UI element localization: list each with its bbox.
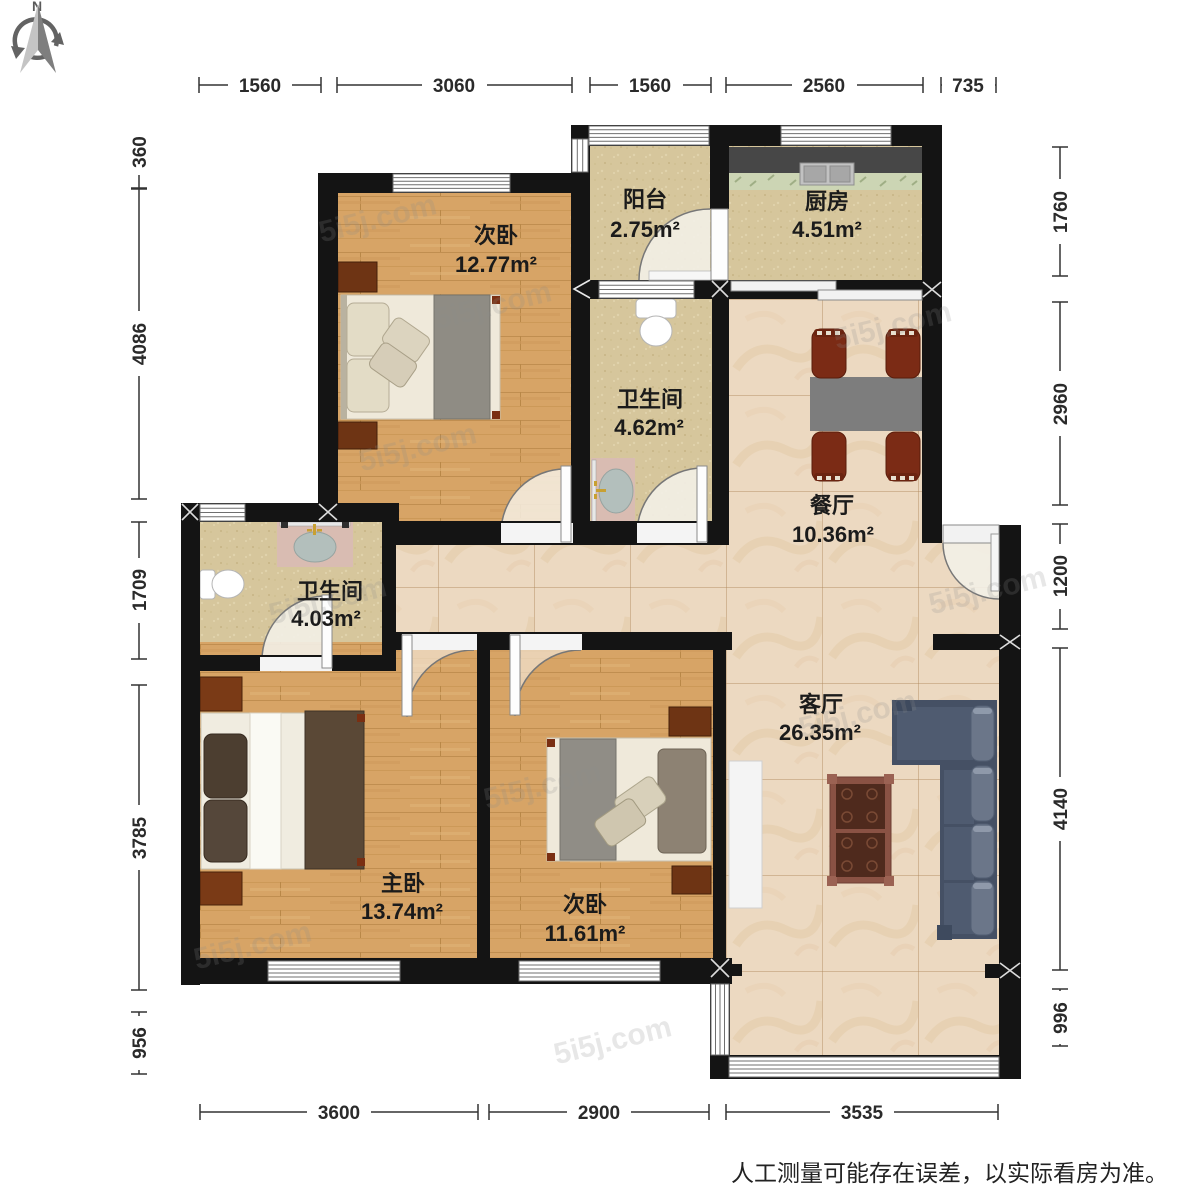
svg-text:主卧: 主卧	[381, 871, 425, 896]
svg-text:1760: 1760	[1051, 191, 1072, 233]
svg-text:4086: 4086	[130, 323, 151, 365]
svg-text:956: 956	[130, 1027, 151, 1059]
svg-text:卫生间: 卫生间	[617, 387, 683, 412]
svg-text:735: 735	[952, 76, 984, 97]
svg-text:13.74m²: 13.74m²	[361, 899, 443, 924]
svg-text:次卧: 次卧	[474, 223, 518, 248]
svg-text:人工测量可能存在误差，以实际看房为准。: 人工测量可能存在误差，以实际看房为准。	[731, 1160, 1168, 1186]
svg-text:996: 996	[1051, 1002, 1072, 1034]
svg-text:3600: 3600	[318, 1103, 360, 1124]
svg-text:1200: 1200	[1051, 555, 1072, 597]
svg-text:1709: 1709	[130, 569, 151, 611]
svg-text:次卧: 次卧	[563, 892, 607, 917]
svg-text:2560: 2560	[803, 76, 845, 97]
svg-text:2960: 2960	[1051, 383, 1072, 425]
svg-text:12.77m²: 12.77m²	[455, 252, 537, 277]
svg-text:1560: 1560	[629, 76, 671, 97]
svg-text:3785: 3785	[130, 816, 151, 859]
svg-text:11.61m²: 11.61m²	[545, 921, 626, 946]
svg-text:3535: 3535	[841, 1103, 884, 1124]
svg-text:餐厅: 餐厅	[810, 493, 854, 518]
svg-text:厨房: 厨房	[805, 189, 849, 214]
svg-text:4140: 4140	[1051, 788, 1072, 830]
svg-text:4.62m²: 4.62m²	[614, 415, 684, 440]
svg-text:10.36m²: 10.36m²	[792, 522, 874, 547]
svg-text:4.51m²: 4.51m²	[792, 217, 862, 242]
svg-text:2900: 2900	[578, 1103, 620, 1124]
svg-text:2.75m²: 2.75m²	[610, 217, 680, 242]
svg-text:3060: 3060	[433, 76, 475, 97]
svg-text:阳台: 阳台	[623, 187, 667, 212]
svg-text:360: 360	[130, 136, 151, 168]
svg-text:1560: 1560	[239, 76, 281, 97]
